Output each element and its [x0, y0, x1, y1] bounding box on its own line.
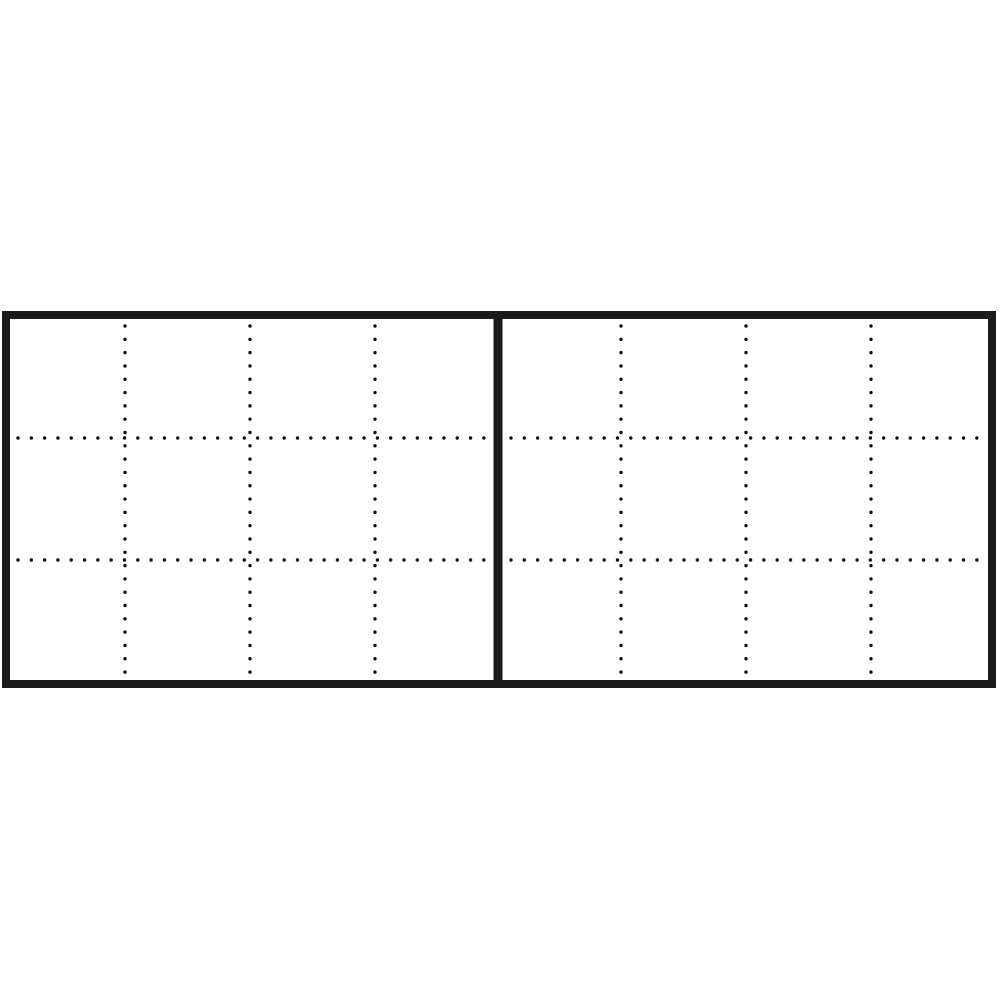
two-panel-grid-diagram — [0, 0, 1000, 1000]
panel-divider — [494, 311, 503, 688]
drawing-area — [0, 0, 1000, 1000]
